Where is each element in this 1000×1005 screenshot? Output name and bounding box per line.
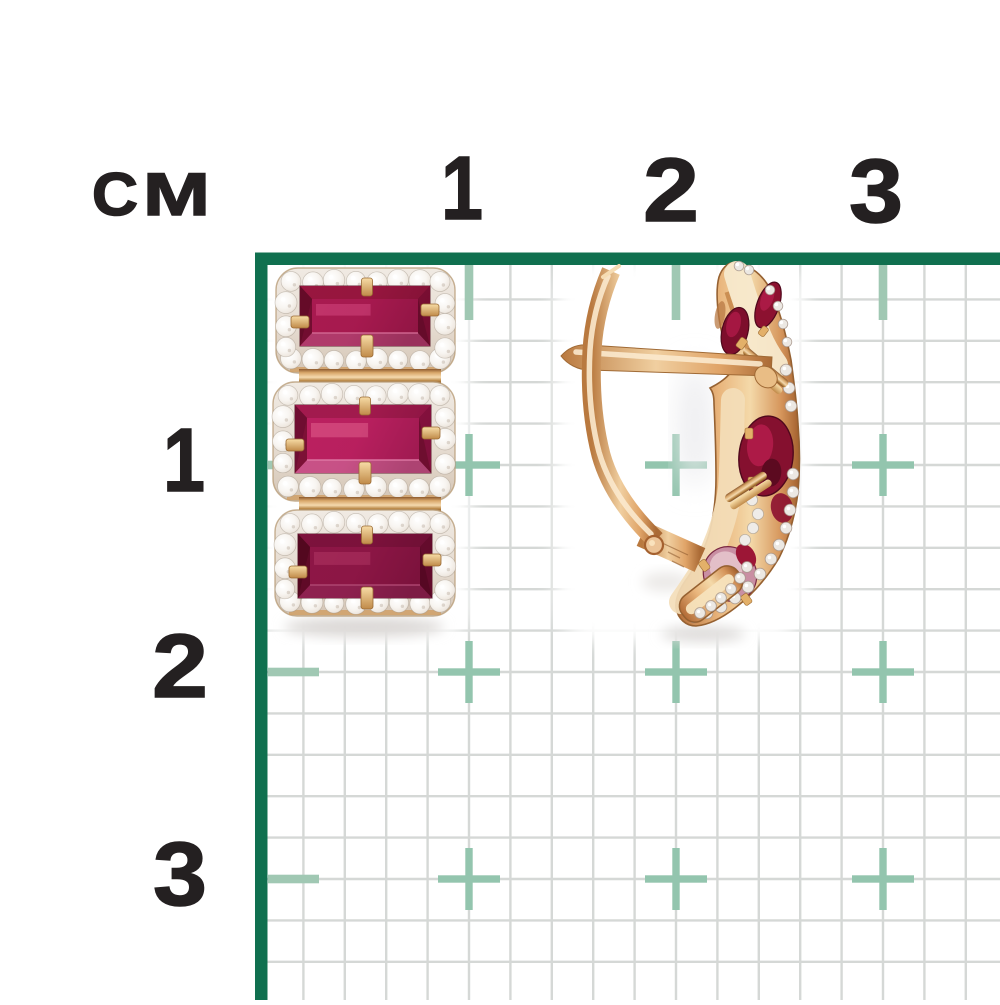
svg-text:3: 3 [153, 825, 207, 925]
svg-text:2: 2 [643, 141, 699, 241]
svg-text:3: 3 [849, 142, 903, 242]
svg-text:2: 2 [152, 617, 208, 717]
svg-text:С: С [92, 161, 138, 228]
svg-text:1: 1 [163, 411, 205, 511]
svg-text:М: М [143, 161, 210, 228]
svg-text:1: 1 [441, 139, 483, 239]
